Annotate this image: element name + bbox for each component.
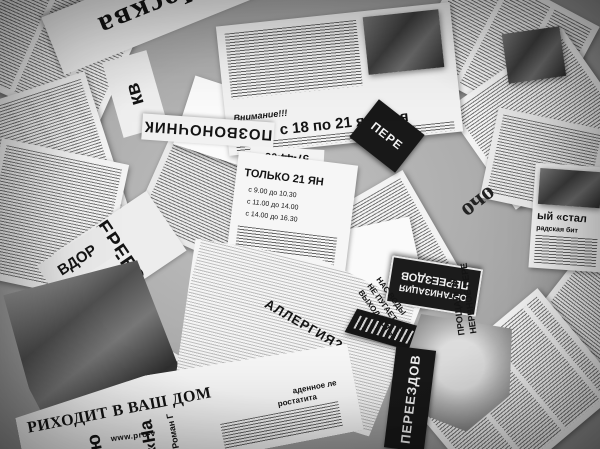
stal-subline: радская бит bbox=[536, 225, 578, 235]
pozvonochnik-headline: ПОЗВОНОЧНИК bbox=[143, 119, 273, 143]
kv-label: кв bbox=[122, 81, 147, 108]
text-columns bbox=[225, 20, 363, 99]
handgun-photo bbox=[502, 26, 566, 84]
schedule-time: с 11.00 до 14.00 bbox=[246, 198, 298, 211]
stalingrad-article-scrap: ый «стал радская бит bbox=[528, 163, 600, 273]
schedule-time: с 9.00 до 10.30 bbox=[248, 187, 297, 200]
tolko-title: ТОЛЬКО 21 ЯН bbox=[244, 168, 325, 189]
schedule-time: с 14.00 до 16.30 bbox=[245, 210, 298, 223]
text-columns bbox=[534, 235, 598, 267]
newspaper-collage-canvas: Москва кв речь Внимание!!! с 18 по 21 ян… bbox=[0, 0, 600, 449]
ocho-letters: очо bbox=[455, 179, 499, 221]
article-photo bbox=[538, 168, 600, 208]
masthead-title: Москва bbox=[93, 0, 212, 42]
pere-banner-label: ПЕРЕ bbox=[369, 120, 405, 152]
pereezdov-label: ПЕРЕЕЗДОВ bbox=[398, 354, 422, 445]
text-columns bbox=[220, 401, 343, 449]
bottom-vertical-letters: лю bbox=[84, 433, 108, 449]
street-scene-photo bbox=[363, 9, 445, 75]
stal-headline: ый «стал bbox=[537, 211, 588, 225]
